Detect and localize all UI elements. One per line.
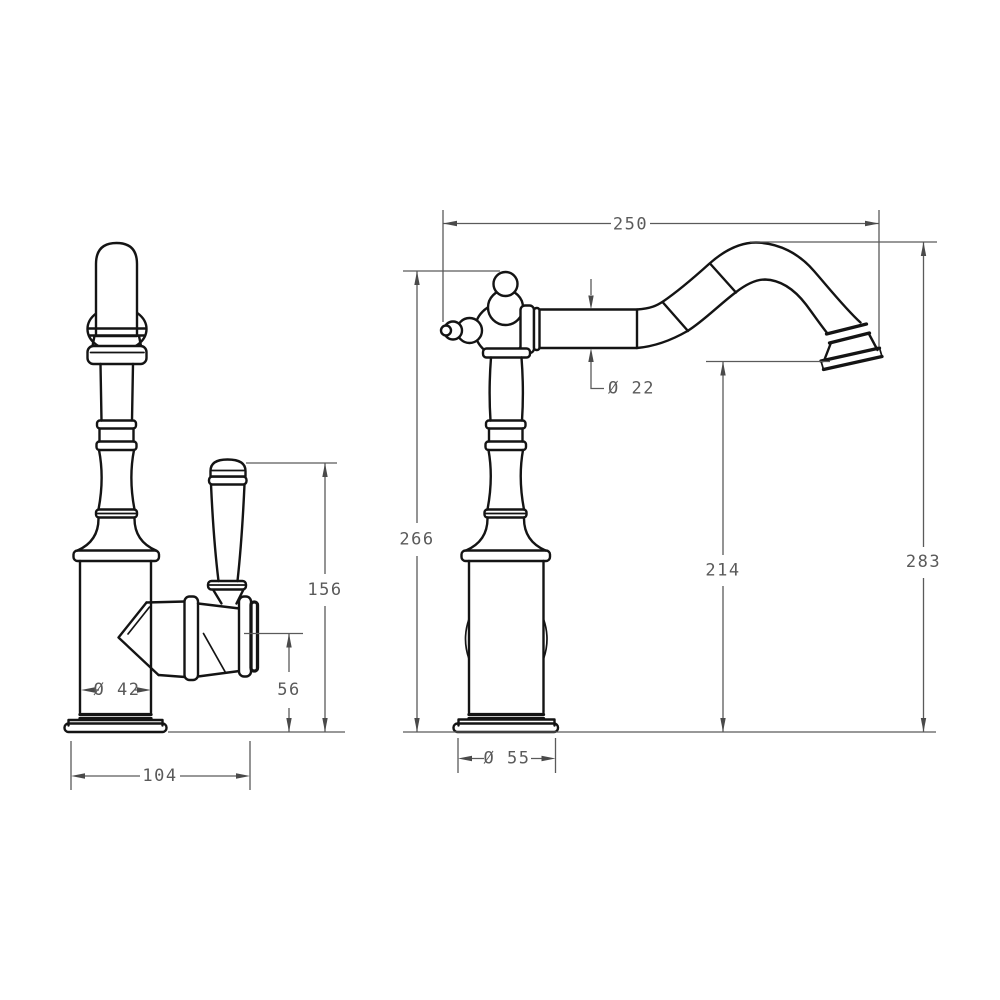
dimension-dia42: Ø 42 bbox=[81, 680, 151, 700]
dimension-104: 104 bbox=[71, 741, 250, 790]
faucet-dimension-drawing: 250 266 283 214 Ø 22 bbox=[0, 0, 1000, 1000]
dim-label-spout-reach: 250 bbox=[613, 215, 648, 235]
dim-label-height-spout-top: 283 bbox=[906, 552, 941, 572]
technical-drawing: 250 266 283 214 Ø 22 bbox=[0, 0, 1000, 1000]
dim-label-body-diameter: Ø 42 bbox=[94, 680, 141, 700]
front-neck bbox=[462, 349, 551, 562]
side-view bbox=[65, 243, 258, 732]
dim-label-spout-diameter: Ø 22 bbox=[608, 379, 655, 399]
dim-label-depth: 104 bbox=[142, 766, 177, 786]
front-valve-head bbox=[441, 272, 540, 356]
side-body bbox=[65, 561, 167, 732]
dim-label-valve-height: 56 bbox=[277, 680, 300, 700]
dimension-dia55: Ø 55 bbox=[458, 738, 556, 773]
side-neck bbox=[74, 364, 160, 561]
dim-label-handle-height: 156 bbox=[307, 580, 342, 600]
front-view bbox=[441, 243, 882, 733]
dimension-56: 56 bbox=[244, 634, 303, 733]
dim-label-base-diameter: Ø 55 bbox=[484, 749, 531, 769]
dim-label-outlet-height: 214 bbox=[705, 561, 740, 581]
dimension-dia22: Ø 22 bbox=[588, 279, 655, 399]
dimension-283: 283 bbox=[750, 242, 941, 732]
dim-label-height-handle: 266 bbox=[399, 530, 434, 550]
side-valve-and-handle bbox=[119, 460, 258, 681]
dimension-214: 214 bbox=[705, 362, 830, 733]
side-spout-end bbox=[88, 243, 147, 364]
front-body bbox=[454, 561, 559, 732]
